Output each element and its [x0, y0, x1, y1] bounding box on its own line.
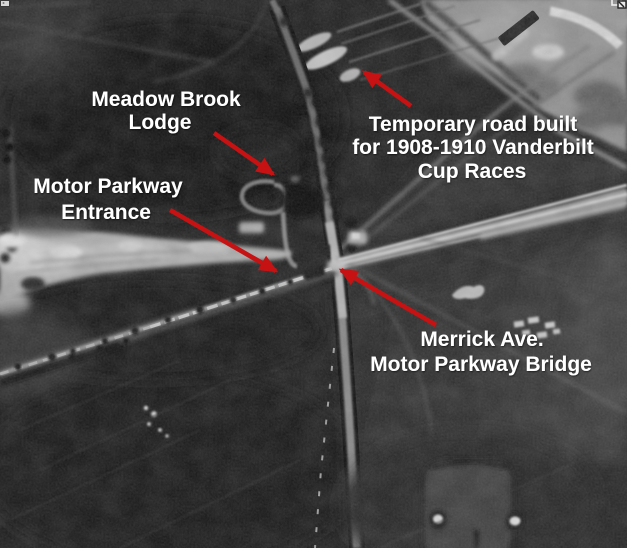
svg-text:Cup Races: Cup Races: [418, 160, 527, 183]
svg-text:Temporary road built: Temporary road built: [369, 113, 577, 136]
svg-text:for 1908-1910 Vanderbilt: for 1908-1910 Vanderbilt: [352, 136, 594, 159]
svg-text:Motor Parkway: Motor Parkway: [33, 175, 183, 198]
svg-text:Meadow Brook: Meadow Brook: [91, 88, 241, 111]
svg-text:Motor Parkway Bridge: Motor Parkway Bridge: [370, 353, 592, 376]
svg-text:Entrance: Entrance: [61, 201, 151, 224]
svg-text:Lodge: Lodge: [129, 111, 192, 134]
svg-text:Merrick Ave.: Merrick Ave.: [420, 328, 543, 351]
